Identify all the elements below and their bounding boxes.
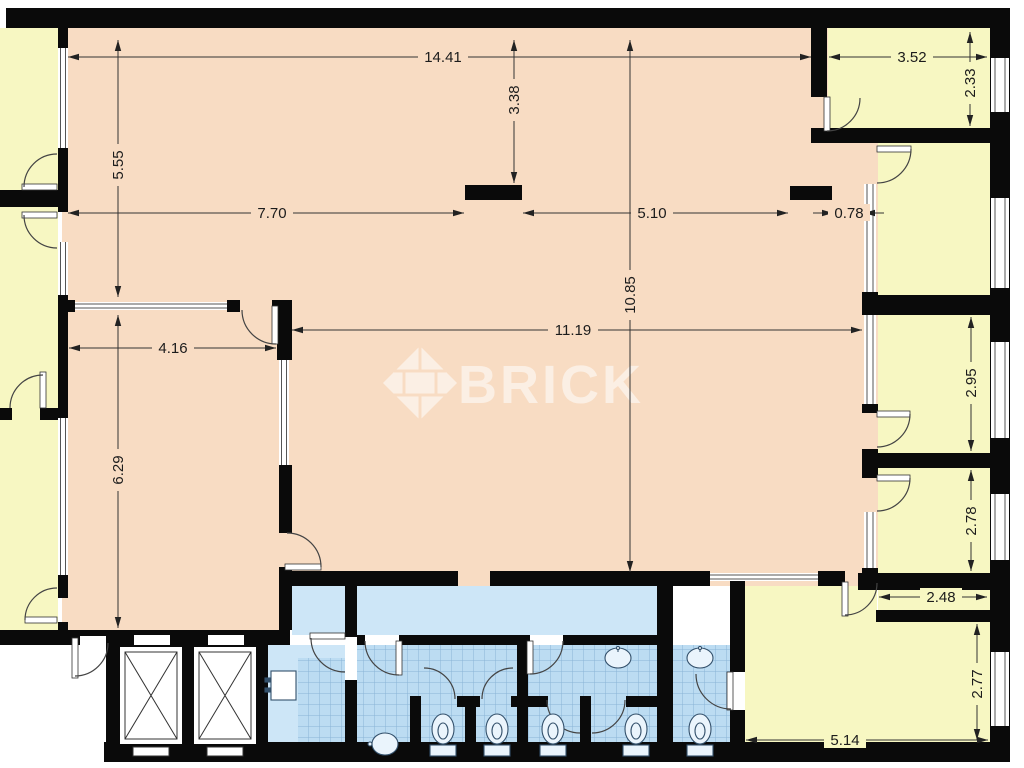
- svg-text:2.78: 2.78: [963, 506, 980, 535]
- toilet-icon: [540, 714, 566, 756]
- svg-text:5.55: 5.55: [110, 150, 127, 179]
- window: [279, 360, 289, 465]
- window: [864, 184, 876, 292]
- wall-pillar-left: [465, 185, 522, 200]
- svg-text:5.10: 5.10: [637, 205, 666, 222]
- window: [58, 48, 68, 148]
- svg-text:2.77: 2.77: [969, 669, 986, 698]
- door: [72, 638, 108, 678]
- svg-text:2.33: 2.33: [962, 68, 979, 97]
- window: [75, 302, 227, 310]
- svg-text:2.95: 2.95: [963, 368, 980, 397]
- svg-text:6.29: 6.29: [110, 455, 127, 484]
- elevator-block: [106, 633, 268, 762]
- watermark: BRICK: [383, 346, 644, 420]
- window: [864, 512, 876, 568]
- window: [58, 418, 68, 575]
- svg-text:10.85: 10.85: [622, 276, 639, 314]
- svg-text:11.19: 11.19: [555, 322, 591, 339]
- svg-text:14.41: 14.41: [424, 49, 462, 66]
- watermark-text: BRICK: [458, 355, 644, 415]
- window: [58, 242, 68, 295]
- toilet-icon: [484, 714, 510, 756]
- wall-pillar-right: [790, 186, 832, 200]
- wall-exterior-top: [6, 8, 1010, 28]
- svg-text:3.38: 3.38: [506, 85, 523, 114]
- floor-plan-page: BRICK: [0, 0, 1024, 768]
- window: [710, 573, 818, 581]
- svg-text:3.52: 3.52: [897, 49, 926, 66]
- svg-text:0.78: 0.78: [834, 205, 863, 222]
- toilet-icon: [687, 714, 713, 756]
- floor-plan-drawing: BRICK: [0, 0, 1024, 768]
- bath-corridor: [357, 586, 657, 635]
- room-left-center: [62, 312, 290, 632]
- room-right-2: [878, 143, 990, 295]
- toilet-icon: [623, 714, 649, 756]
- svg-text:4.16: 4.16: [158, 340, 187, 357]
- svg-text:2.48: 2.48: [926, 589, 955, 606]
- toilet-icon: [430, 714, 456, 756]
- window: [864, 315, 876, 404]
- svg-text:5.14: 5.14: [830, 732, 859, 749]
- rooms-left-column: [0, 28, 58, 632]
- svg-text:7.70: 7.70: [257, 205, 286, 222]
